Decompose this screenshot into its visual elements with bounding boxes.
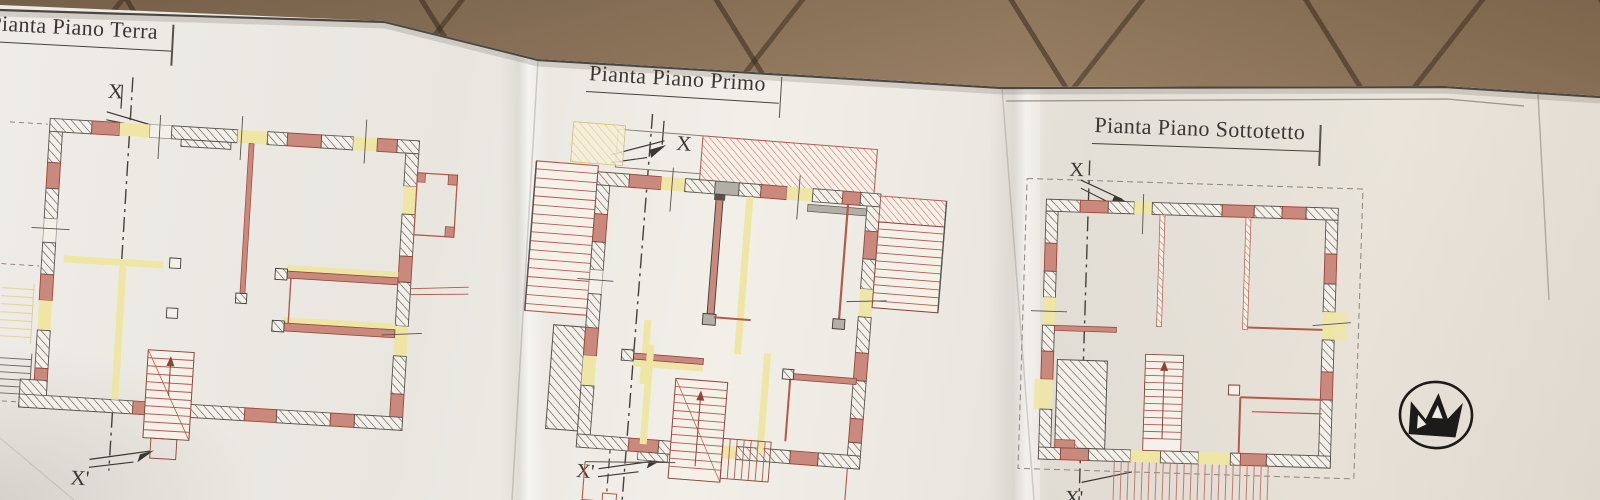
terra-balcony <box>410 173 475 298</box>
title-underline-tick <box>778 77 782 118</box>
floor-plan-terra: X X' <box>0 56 483 500</box>
terra-section-label-top: X <box>107 79 124 104</box>
floor-plan-sottotetto: X X' <box>999 150 1407 500</box>
plan-title-terra: Pianta Piano Terra <box>0 10 173 52</box>
floor-plan-primo: X X' <box>475 103 993 500</box>
plan-title-primo-text: Pianta Piano Primo <box>588 60 766 96</box>
primo-interior-walls <box>615 188 870 461</box>
sotto-stairs <box>1143 354 1184 451</box>
drawing-paper-sheet: X X' <box>0 0 1600 500</box>
sotto-hatch-block <box>1055 360 1108 450</box>
primo-right-balcony <box>872 196 947 313</box>
terra-exterior-ghost-stair <box>0 282 34 344</box>
plan-title-sottotetto: Pianta Piano Sottotetto <box>1092 112 1320 152</box>
terra-stairs <box>142 350 195 461</box>
crown-monogram-icon <box>1393 371 1479 458</box>
terra-interior-walls <box>55 133 405 417</box>
sotto-section-label-bottom: X' <box>1065 487 1084 500</box>
plan-title-primo: Pianta Piano Primo <box>586 60 781 104</box>
floor-plan-terra-drawing: X X' <box>0 56 483 500</box>
title-underline-tick <box>171 25 175 66</box>
floor-plan-primo-drawing: X X' <box>476 103 994 500</box>
sotto-section-label-top: X <box>1069 159 1085 181</box>
plan-title-terra-text: Pianta Piano Terra <box>0 10 159 44</box>
terra-section-label-bottom: X' <box>70 465 90 490</box>
floor-plan-sottotetto-drawing: X X' <box>999 150 1406 500</box>
sotto-roof-slope-lines <box>1112 461 1268 500</box>
photo-of-floor-plans: X X' <box>0 0 1600 500</box>
plan-title-sottotetto-text: Pianta Piano Sottotetto <box>1094 112 1306 144</box>
primo-left-balcony <box>525 161 599 315</box>
